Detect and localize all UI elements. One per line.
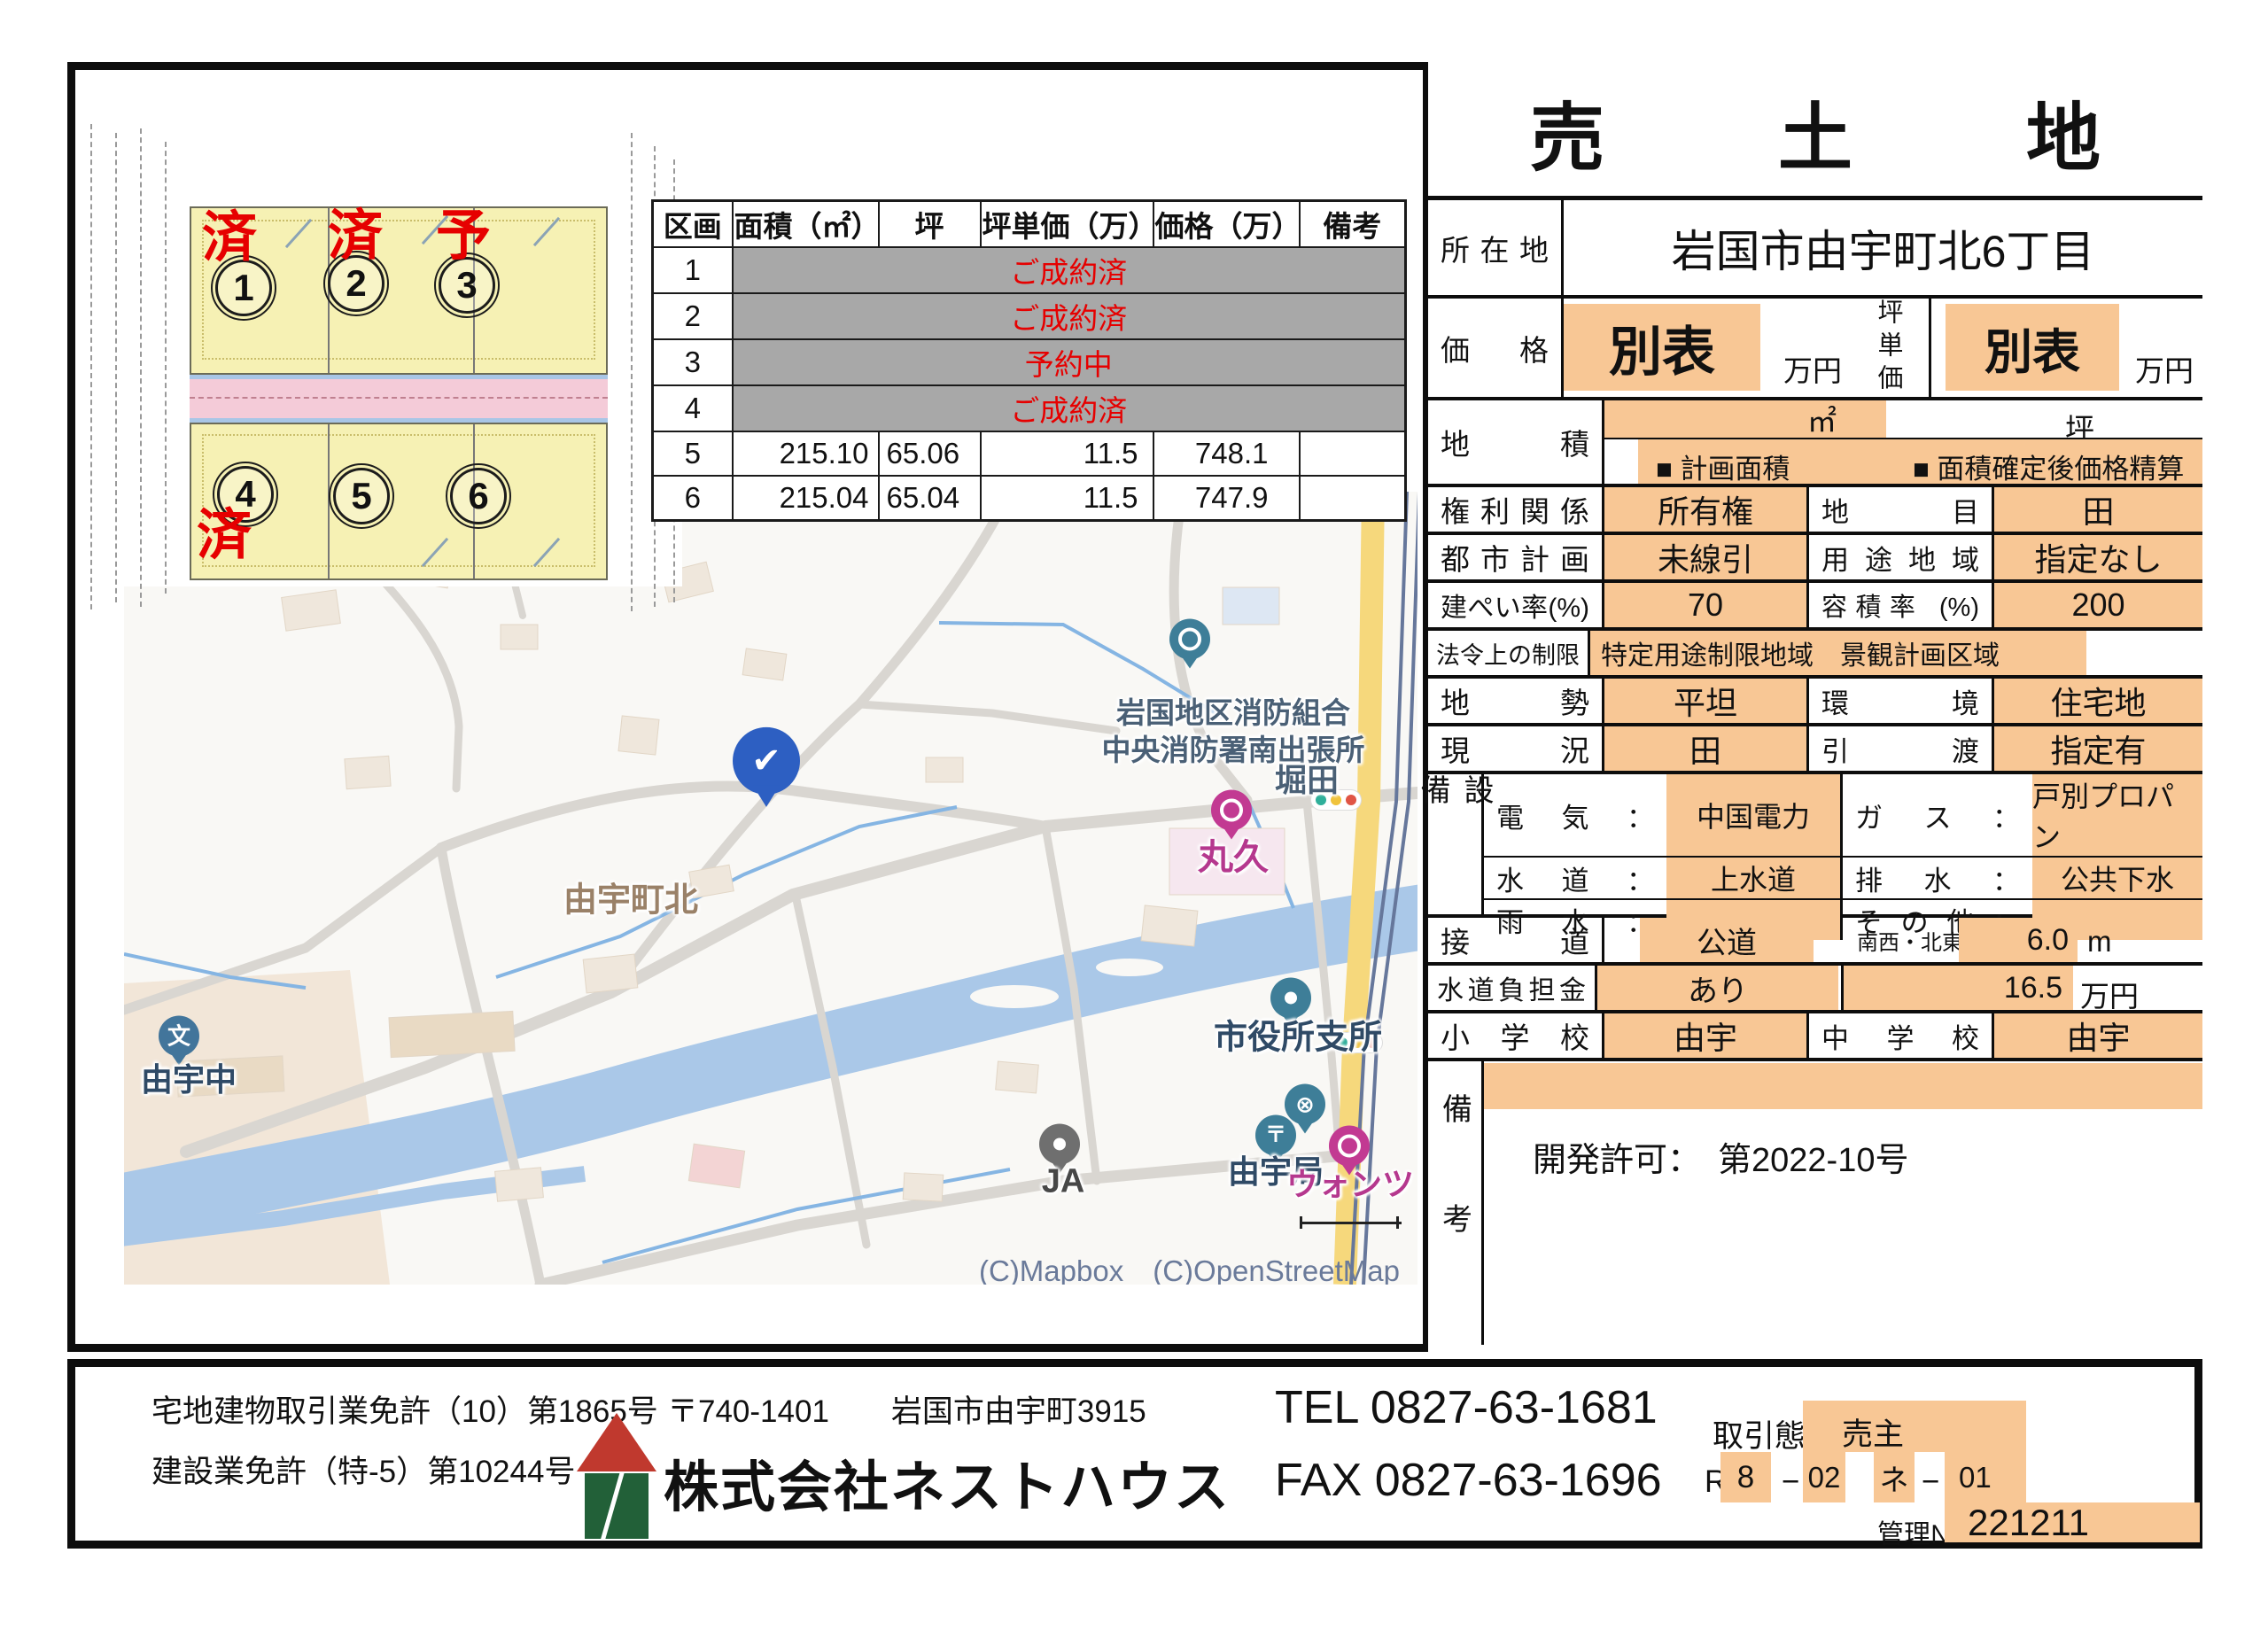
fire-station-pin bbox=[1169, 618, 1210, 659]
code-dash-2: − bbox=[1922, 1464, 1939, 1500]
utility-row: 電気： 中国電力 ガス： 戸別プロパン bbox=[1484, 774, 2202, 858]
lot-divider bbox=[328, 424, 330, 578]
check-icon: ✔ bbox=[751, 743, 781, 779]
row-label2: 地目 bbox=[1806, 487, 1994, 532]
table-row: 3予約中 bbox=[653, 339, 1406, 385]
utility-label: 電気： bbox=[1484, 774, 1666, 856]
price-unit: 万円 bbox=[1783, 347, 1842, 390]
license-line-2: 建設業免許（特-5）第10244号 bbox=[151, 1447, 575, 1492]
row-label: 設備 bbox=[1428, 774, 1484, 914]
row-law: 法令上の制限 特定用途制限地域 景観計画区域 bbox=[1428, 631, 2202, 679]
row-city-plan: 都市計画 未線引 用途地域 指定なし bbox=[1428, 535, 2202, 583]
land-category-value: 田 bbox=[1994, 487, 2202, 532]
road-width-value: 6.0 bbox=[1959, 918, 2078, 962]
row-remarks: 備考 開発許可： 第2022-10号 bbox=[1428, 1061, 2202, 1345]
lot-table-header: 区画面積（㎡）坪 坪単価（万）価格（万）備考 bbox=[653, 201, 1406, 248]
survey-line bbox=[140, 128, 142, 607]
row-label: 備考 bbox=[1428, 1061, 1484, 1345]
row-label: 地積 bbox=[1428, 400, 1604, 484]
road-cells: 公道 南西・北東側 6.0 m bbox=[1604, 918, 2202, 962]
row-label: 権利関係 bbox=[1428, 487, 1604, 532]
row-label: 小学校 bbox=[1428, 1013, 1604, 1058]
row-label2: 引渡 bbox=[1806, 726, 1994, 771]
gas-value: 戸別プロパン bbox=[2032, 774, 2202, 856]
code-cell-4: 01 bbox=[1945, 1452, 2026, 1502]
area-checks: ■ 計画面積 ■ 面積確定後価格精算 bbox=[1604, 439, 2202, 484]
water-fee-unit: 万円 bbox=[2080, 973, 2139, 1015]
row-utilities: 設備 電気： 中国電力 ガス： 戸別プロパン 水道： 上水道 排水： 公共下水 … bbox=[1428, 774, 2202, 918]
location-map: ✔ 文 ⊗ 〒 岩国地区消防組合 中央消防署南出張所 堀田 丸久 由宇町北 由宇… bbox=[124, 492, 1417, 1285]
elementary-school-value: 由宇 bbox=[1604, 1013, 1806, 1058]
logo-roof-icon bbox=[577, 1413, 656, 1471]
price-value: 別表 bbox=[1564, 304, 1760, 391]
map-attribution: (C)Mapbox (C)OpenStreetMap (C)Yahoo Japa… bbox=[979, 1247, 1417, 1285]
tel-number: TEL 0827-63-1681 bbox=[1275, 1381, 1658, 1434]
row-current: 現況 田 引渡 指定有 bbox=[1428, 726, 2202, 774]
row-schools: 小学校 由宇 中学校 由宇 bbox=[1428, 1013, 2202, 1061]
status-cell: ご成約済 bbox=[733, 247, 1406, 293]
bag-icon bbox=[1338, 1134, 1361, 1157]
table-row: 5215.1065.06 11.5748.1 bbox=[653, 431, 1406, 476]
law-cell: 特定用途制限地域 景観計画区域 bbox=[1590, 631, 2202, 675]
row-label: 接道 bbox=[1428, 918, 1604, 962]
row-label: 水道負担金 bbox=[1428, 966, 1597, 1010]
law-value: 特定用途制限地域 景観計画区域 bbox=[1590, 631, 2086, 675]
row-location: 所在地 岩国市由宇町北6丁目 bbox=[1428, 200, 2202, 299]
water-fee-cells: あり 16.5 万円 bbox=[1597, 966, 2202, 1010]
shop-icon bbox=[1220, 798, 1243, 821]
code-cell-3: ネ bbox=[1874, 1452, 1915, 1502]
hotta-label: 堀田 bbox=[1275, 755, 1339, 801]
row-label: 建ぺい率(%) bbox=[1428, 583, 1604, 627]
lot-number-5: 5 bbox=[333, 468, 390, 524]
school-icon: 文 bbox=[167, 1024, 190, 1047]
map-canvas bbox=[124, 492, 1417, 1285]
remarks-highlight-bar bbox=[1484, 1063, 2202, 1109]
survey-line bbox=[115, 133, 117, 602]
property-location-pin: ✔ bbox=[733, 727, 800, 795]
ja-label: JA bbox=[1042, 1163, 1085, 1201]
sewer-value: 公共下水 bbox=[2032, 858, 2202, 898]
company-name: 株式会社ネストハウス bbox=[664, 1442, 1231, 1522]
junior-high-value: 由宇 bbox=[1994, 1013, 2202, 1058]
utility-row: 水道： 上水道 排水： 公共下水 bbox=[1484, 858, 2202, 900]
status-cell: ご成約済 bbox=[733, 385, 1406, 431]
coverage-value: 70 bbox=[1604, 583, 1806, 627]
price-cell: 別表 万円 bbox=[1564, 299, 1847, 397]
row-coverage: 建ぺい率(%) 70 容積率 (%) 200 bbox=[1428, 583, 2202, 631]
marukyu-label: 丸久 bbox=[1198, 828, 1269, 880]
code-cell-2: 02 bbox=[1803, 1452, 1845, 1502]
row-label2: 容積率 (%) bbox=[1806, 583, 1994, 627]
current-state-value: 田 bbox=[1604, 726, 1806, 771]
area-values: ㎡ 坪 bbox=[1604, 400, 2202, 439]
wants-label: ウォンツ bbox=[1286, 1159, 1414, 1205]
poi-pin: ⊗ bbox=[1285, 1083, 1325, 1124]
code-dash-1: − bbox=[1782, 1464, 1799, 1500]
company-logo bbox=[577, 1413, 656, 1539]
handover-value: 指定有 bbox=[1994, 726, 2202, 771]
fire-station-label-1: 岩国地区消防組合 bbox=[1116, 689, 1350, 732]
water-value: 上水道 bbox=[1666, 858, 1843, 898]
plot-road bbox=[190, 375, 608, 423]
status-cell: 予約中 bbox=[733, 339, 1406, 385]
survey-line bbox=[90, 124, 92, 609]
row-area: 地積 ㎡ 坪 ■ 計画面積 ■ 面積確定後価格精算 bbox=[1428, 400, 2202, 487]
rights-value: 所有権 bbox=[1604, 487, 1806, 532]
location-value: 岩国市由宇町北6丁目 bbox=[1564, 200, 2202, 295]
table-row: 2ご成約済 bbox=[653, 293, 1406, 339]
utility-label: 排水： bbox=[1843, 858, 2032, 898]
row-road: 接道 公道 南西・北東側 6.0 m bbox=[1428, 918, 2202, 966]
unit-price-cell: 別表 万円 bbox=[1931, 299, 2202, 397]
marukyu-store-pin bbox=[1211, 789, 1252, 830]
map-scale-bar bbox=[1300, 1216, 1399, 1229]
remarks-text: 開発許可： 第2022-10号 bbox=[1533, 1132, 1908, 1181]
row-label: 地勢 bbox=[1428, 679, 1604, 723]
deal-type-cell: 売主 bbox=[1803, 1401, 2026, 1452]
row-rights: 権利関係 所有権 地目 田 bbox=[1428, 487, 2202, 535]
area-check-bar: ■ 計画面積 ■ 面積確定後価格精算 bbox=[1638, 439, 2202, 484]
environment-value: 住宅地 bbox=[1994, 679, 2202, 723]
table-row: 4ご成約済 bbox=[653, 385, 1406, 431]
road-type-value: 公道 bbox=[1640, 918, 1814, 962]
status-mark-lot2: 済 bbox=[328, 209, 383, 264]
lot-number-6: 6 bbox=[450, 468, 507, 524]
survey-line bbox=[631, 133, 633, 611]
school-label: 由宇中 bbox=[141, 1054, 237, 1100]
page-title: 売 土 地 bbox=[1480, 79, 2150, 186]
water-fee-value: あり bbox=[1597, 966, 1838, 1010]
status-mark-lot1: 済 bbox=[202, 211, 257, 266]
unit-price-label: 坪単価 bbox=[1847, 299, 1931, 397]
panel-title-row: 売 土 地 bbox=[1428, 69, 2202, 200]
row-water-fee: 水道負担金 あり 16.5 万円 bbox=[1428, 966, 2202, 1013]
road-width-unit: m bbox=[2087, 925, 2112, 959]
area-m2: ㎡ bbox=[1604, 400, 1886, 438]
code-cell-1: 8 bbox=[1720, 1452, 1771, 1502]
status-mark-lot3: 予 bbox=[436, 209, 491, 264]
row-label: 現況 bbox=[1428, 726, 1604, 771]
row-terrain: 地勢 平坦 環境 住宅地 bbox=[1428, 679, 2202, 726]
city-plan-value: 未線引 bbox=[1604, 535, 1806, 579]
electric-value: 中国電力 bbox=[1666, 774, 1843, 856]
fax-number: FAX 0827-63-1696 bbox=[1275, 1454, 1662, 1507]
survey-line bbox=[165, 142, 167, 594]
school-pin: 文 bbox=[159, 1015, 199, 1056]
remarks-cell: 開発許可： 第2022-10号 bbox=[1484, 1061, 2202, 1345]
city-office-icon bbox=[1285, 991, 1297, 1004]
logo-body-icon bbox=[585, 1473, 649, 1539]
row-label: 法令上の制限 bbox=[1428, 631, 1590, 675]
utility-label: 水道： bbox=[1484, 858, 1666, 898]
utility-label: ガス： bbox=[1843, 774, 2032, 856]
table-row: 1ご成約済 bbox=[653, 247, 1406, 293]
area-cells: ㎡ 坪 ■ 計画面積 ■ 面積確定後価格精算 bbox=[1604, 400, 2202, 484]
floor-ratio-value: 200 bbox=[1994, 583, 2202, 627]
zoning-value: 指定なし bbox=[1994, 535, 2202, 579]
ja-pin bbox=[1039, 1123, 1080, 1164]
city-office-label: 市役所支所 bbox=[1214, 1010, 1382, 1059]
management-no-value: 221211 bbox=[1945, 1502, 2200, 1542]
property-details-panel: 売 土 地 所在地 岩国市由宇町北6丁目 価格 別表 万円 坪単価 別表 万円 … bbox=[1423, 62, 2202, 1352]
row-label2: 中学校 bbox=[1806, 1013, 1994, 1058]
company-address: 〒740-1401 岩国市由宇町3915 bbox=[667, 1386, 1146, 1432]
footer: 宅地建物取引業免許（10）第1865号 建設業免許（特-5）第10244号 〒7… bbox=[67, 1359, 2202, 1549]
town-label: 由宇町北 bbox=[563, 873, 698, 921]
check-planned-area: ■ 計画面積 bbox=[1656, 446, 1790, 486]
fire-station-icon bbox=[1178, 627, 1201, 650]
row-label2: 環境 bbox=[1806, 679, 1994, 723]
status-cell: ご成約済 bbox=[733, 293, 1406, 339]
water-fee-amount: 16.5 bbox=[1841, 966, 2073, 1010]
check-price-adjust: ■ 面積確定後価格精算 bbox=[1913, 446, 2184, 486]
ja-icon bbox=[1053, 1137, 1066, 1150]
post-icon: 〒 bbox=[1265, 1124, 1286, 1145]
lot-price-table: 区画面積（㎡）坪 坪単価（万）価格（万）備考 1ご成約済 2ご成約済 3予約中 … bbox=[651, 199, 1407, 522]
status-mark-lot4: 済 bbox=[197, 509, 252, 563]
row-label: 所在地 bbox=[1428, 200, 1564, 295]
utility-grid: 電気： 中国電力 ガス： 戸別プロパン 水道： 上水道 排水： 公共下水 雨水：… bbox=[1484, 774, 2202, 914]
table-row: 6215.0465.04 11.5747.9 bbox=[653, 476, 1406, 521]
terrain-value: 平坦 bbox=[1604, 679, 1806, 723]
flyer-page: ✔ 文 ⊗ 〒 岩国地区消防組合 中央消防署南出張所 堀田 丸久 由宇町北 由宇… bbox=[0, 0, 2268, 1646]
unit-price-unit: 万円 bbox=[2135, 347, 2194, 390]
row-label: 価格 bbox=[1428, 299, 1564, 397]
row-label: 都市計画 bbox=[1428, 535, 1604, 579]
row-label2: 用途地域 bbox=[1806, 535, 1994, 579]
unit-price-value: 別表 bbox=[1946, 304, 2119, 391]
deal-type-value: 売主 bbox=[1842, 1409, 1904, 1455]
row-price: 価格 別表 万円 坪単価 別表 万円 bbox=[1428, 299, 2202, 400]
cross-circle-icon: ⊗ bbox=[1295, 1092, 1315, 1115]
